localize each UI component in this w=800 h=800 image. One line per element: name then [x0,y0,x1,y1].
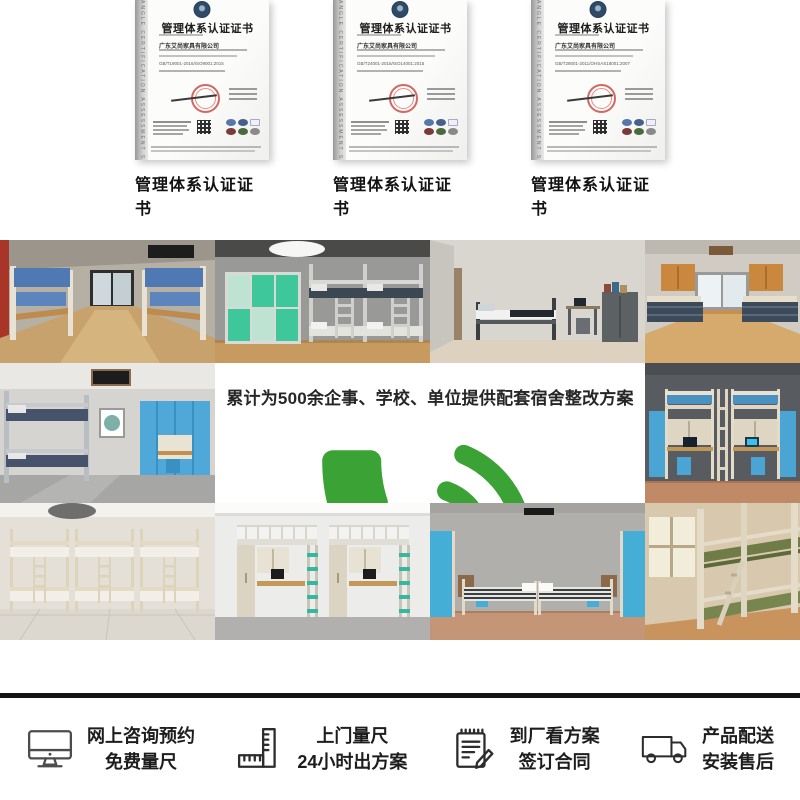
text-line-placeholder [349,146,459,148]
service-delivery-install: 产品配送 安装售后 [641,723,774,775]
service-line2: 签订合同 [510,749,600,775]
certifier-emblem-icon [392,1,409,18]
badge-icon [250,119,260,126]
certificate-caption: 管理体系认证证书 [333,171,467,219]
text-line-placeholder [351,125,385,127]
text-line-placeholder [351,133,381,135]
badge-icon [448,128,458,135]
certificate-side-text: ANGLE CERTIFICATION ASSESSMENT SERVICES [333,0,346,160]
text-line-placeholder [549,121,587,123]
certificate-side-text: ANGLE CERTIFICATION ASSESSMENT SERVICES [135,0,148,160]
text-line-placeholder [229,88,257,90]
text-line-placeholder [555,34,599,36]
photo-loft-desk-units-dark-room [645,363,800,503]
photo-bunkbed-blue-wardrobe-room [0,363,215,503]
certificate-card: ANGLE CERTIFICATION ASSESSMENT SERVICES … [531,0,665,160]
photo-blue-loftbed-room [0,240,215,363]
badge-icon [634,128,644,135]
text-line-placeholder [151,146,261,148]
badge-icon [646,119,656,126]
text-line-placeholder [427,88,455,90]
text-line-placeholder [555,55,633,57]
photo-loft-workstations-green-ladder [215,503,430,640]
gallery-grid: 艾尚家具 累计为500余企事、学校、单位提供配套宿舍整改方案 全国订购服务热线 … [0,240,800,640]
service-sign-contract: 到厂看方案 签订合同 [449,723,600,775]
certificates-section: ANGLE CERTIFICATION ASSESSMENT SERVICES … [0,0,800,240]
photo-metal-loftbed-frame-closeup [645,503,800,640]
text-line-placeholder [351,129,387,131]
certifier-emblem-icon [194,1,211,18]
text-line-placeholder [153,125,187,127]
qr-code-icon [593,120,607,134]
certificate-side-text: ANGLE CERTIFICATION ASSESSMENT SERVICES [531,0,544,160]
text-line-placeholder [547,150,651,152]
badge-icon [436,119,446,126]
text-line-placeholder [159,34,203,36]
text-line-placeholder [625,93,653,95]
text-line-placeholder [547,146,657,148]
certificate-side-band: ANGLE CERTIFICATION ASSESSMENT SERVICES [135,0,148,160]
certificate-card: ANGLE CERTIFICATION ASSESSMENT SERVICES … [135,0,269,160]
badge-icon [226,128,236,135]
phone-icon [290,418,548,503]
qr-code-icon [197,120,211,134]
text-line-placeholder [427,93,455,95]
hotline-row: 全国订购服务热线 400-0099-515 [215,418,645,503]
certifier-emblem-icon [590,1,607,18]
qr-code-icon [395,120,409,134]
certificate-caption: 管理体系认证证书 [531,171,665,219]
photo-green-lockers-bunkbeds [215,240,430,363]
text-line-placeholder [229,93,257,95]
text-line-placeholder [153,121,191,123]
badge-icon [238,119,248,126]
text-line-placeholder [549,125,583,127]
accreditation-badges [226,119,260,135]
badge-icon [238,128,248,135]
accreditation-badges [424,119,458,135]
text-line-placeholder [351,121,389,123]
text-line-placeholder [555,70,621,72]
badge-icon [646,128,656,135]
service-line2: 免费量尺 [87,749,195,775]
certificate-2: ANGLE CERTIFICATION ASSESSMENT SERVICES … [333,0,467,240]
accreditation-badges [622,119,656,135]
promo-page: ANGLE CERTIFICATION ASSESSMENT SERVICES … [0,0,800,800]
as-logo-icon [215,363,523,375]
text-line-placeholder [357,34,401,36]
service-line1: 网上咨询预约 [87,723,195,749]
contract-icon [449,727,497,771]
badge-icon [226,119,236,126]
text-line-placeholder [625,98,653,100]
text-line-placeholder [555,49,643,51]
text-line-placeholder [349,150,453,152]
service-line2: 安装售后 [702,749,774,775]
badge-icon [424,128,434,135]
white-spacer [0,640,800,693]
service-online-consult: 网上咨询预约 免费量尺 [26,723,195,775]
ruler-icon [236,727,284,771]
text-line-placeholder [357,55,435,57]
badge-icon [436,128,446,135]
certificate-side-band: ANGLE CERTIFICATION ASSESSMENT SERVICES [333,0,346,160]
photo-single-beds-blue-cabinets [430,503,645,640]
text-line-placeholder [159,70,225,72]
badge-icon [424,119,434,126]
certificate-1: ANGLE CERTIFICATION ASSESSMENT SERVICES … [135,0,269,240]
certificate-standard: GB/T19001-2016/ISO9001:2015 [159,61,224,66]
text-line-placeholder [153,129,189,131]
text-line-placeholder [549,133,579,135]
badge-icon [448,119,458,126]
services-bar: 网上咨询预约 免费量尺 上门量尺 24小时出方案 [0,698,800,800]
service-onsite-measure: 上门量尺 24小时出方案 [236,723,407,775]
text-line-placeholder [549,129,585,131]
text-line-placeholder [151,150,255,152]
certificate-3: ANGLE CERTIFICATION ASSESSMENT SERVICES … [531,0,665,240]
service-text: 到厂看方案 签订合同 [510,723,600,775]
banner-headline: 累计为500余企事、学校、单位提供配套宿舍整改方案 [226,384,633,409]
certificate-standard: GB/T24001-2016/ISO14001:2015 [357,61,424,66]
brand-banner: 艾尚家具 累计为500余企事、学校、单位提供配套宿舍整改方案 全国订购服务热线 … [215,363,645,503]
text-line-placeholder [229,98,257,100]
text-line-placeholder [427,98,455,100]
badge-icon [634,119,644,126]
service-line1: 上门量尺 [297,723,407,749]
service-line1: 到厂看方案 [510,723,600,749]
certificate-caption: 管理体系认证证书 [135,171,269,219]
certificate-standard: GB/T28001-2011/OHSAS18001:2007 [555,61,630,66]
photo-single-bed-office-room [430,240,645,363]
text-line-placeholder [159,49,247,51]
service-text: 上门量尺 24小时出方案 [297,723,407,775]
service-line1: 产品配送 [702,723,774,749]
badge-icon [622,119,632,126]
photo-three-bunkbeds-room [0,503,215,640]
service-text: 网上咨询预约 免费量尺 [87,723,195,775]
service-line2: 24小时出方案 [297,749,407,775]
truck-icon [641,727,689,771]
photo-dorm-with-wood-cabinets [645,240,800,363]
text-line-placeholder [159,55,237,57]
service-text: 产品配送 安装售后 [702,723,774,775]
badge-icon [250,128,260,135]
text-line-placeholder [625,88,653,90]
certificate-card: ANGLE CERTIFICATION ASSESSMENT SERVICES … [333,0,467,160]
badge-icon [622,128,632,135]
monitor-icon [26,727,74,771]
brand-logo: 艾尚家具 [215,363,645,375]
certificate-side-band: ANGLE CERTIFICATION ASSESSMENT SERVICES [531,0,544,160]
text-line-placeholder [357,49,445,51]
text-line-placeholder [153,133,183,135]
text-line-placeholder [357,70,423,72]
